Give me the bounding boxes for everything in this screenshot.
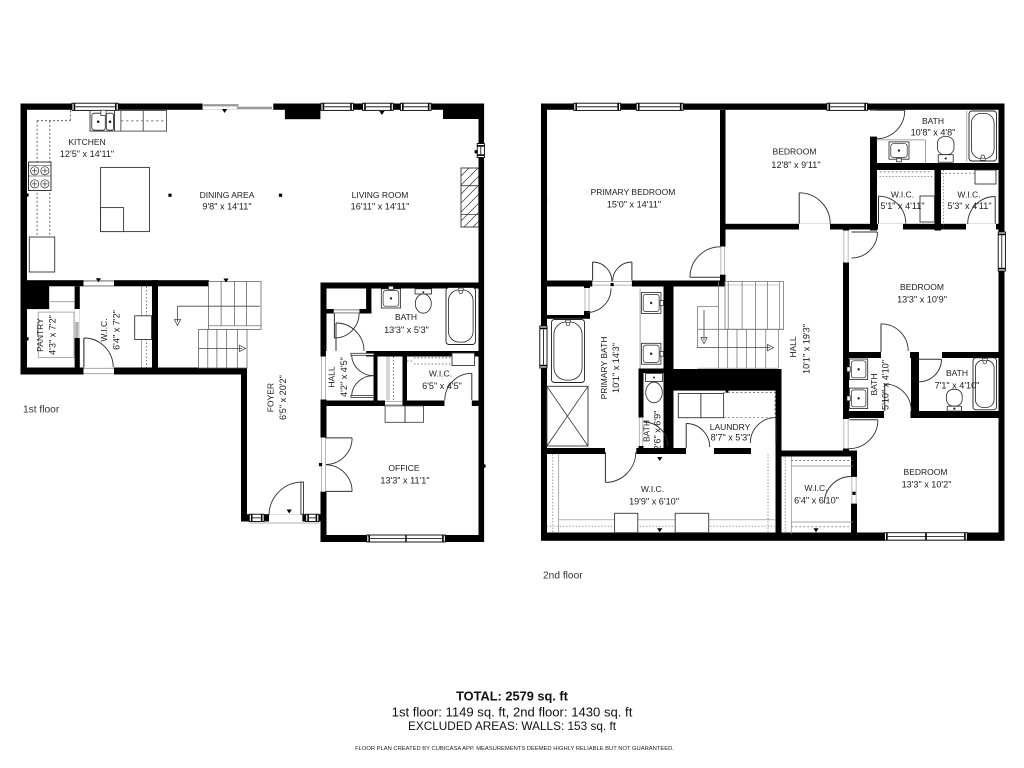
svg-text:BATH: BATH xyxy=(922,116,944,126)
svg-text:W.I.C.: W.I.C. xyxy=(891,190,914,200)
svg-text:1st floor: 1st floor xyxy=(23,405,60,416)
svg-text:16'11" x 14'11": 16'11" x 14'11" xyxy=(351,202,410,212)
svg-text:PANTRY: PANTRY xyxy=(35,318,45,352)
svg-text:FOYER: FOYER xyxy=(266,383,276,412)
svg-text:W.I.C.: W.I.C. xyxy=(957,190,980,200)
svg-text:4'2" x 4'5": 4'2" x 4'5" xyxy=(339,357,349,397)
svg-text:2nd floor: 2nd floor xyxy=(543,571,583,582)
svg-text:5'10" x 4'10": 5'10" x 4'10" xyxy=(881,360,891,410)
svg-text:7'1" x 4'10": 7'1" x 4'10" xyxy=(935,380,980,390)
svg-text:BEDROOM: BEDROOM xyxy=(773,147,817,157)
svg-text:9'8" x 14'11": 9'8" x 14'11" xyxy=(202,202,251,212)
svg-text:HALL: HALL xyxy=(788,336,798,358)
svg-text:4'3" x 7'2": 4'3" x 7'2" xyxy=(47,315,57,355)
svg-text:13'3" x 10'9": 13'3" x 10'9" xyxy=(897,294,947,304)
svg-text:W.I.C.: W.I.C. xyxy=(641,484,664,494)
svg-text:6'5" x 20'2": 6'5" x 20'2" xyxy=(278,375,288,420)
svg-text:1st floor: 1149 sq. ft, 2nd fl: 1st floor: 1149 sq. ft, 2nd floor: 1430 … xyxy=(392,705,633,720)
svg-text:BATH: BATH xyxy=(395,312,417,322)
svg-text:13'3" x 10'2": 13'3" x 10'2" xyxy=(902,480,952,490)
svg-text:13'3" x 5'3": 13'3" x 5'3" xyxy=(384,325,429,335)
svg-text:2'6" x 6'9": 2'6" x 6'9" xyxy=(653,411,663,451)
svg-text:TOTAL: 2579 sq. ft: TOTAL: 2579 sq. ft xyxy=(456,688,569,703)
svg-text:6'4" x 7'2": 6'4" x 7'2" xyxy=(112,310,122,350)
svg-text:BEDROOM: BEDROOM xyxy=(900,282,944,292)
svg-text:19'9" x 6'10": 19'9" x 6'10" xyxy=(629,497,679,507)
svg-text:PRIMARY BATH: PRIMARY BATH xyxy=(599,337,609,400)
svg-text:6'4" x 6'10": 6'4" x 6'10" xyxy=(794,495,839,505)
svg-text:KITCHEN: KITCHEN xyxy=(68,137,105,147)
svg-text:DINING AREA: DINING AREA xyxy=(200,190,255,200)
svg-text:12'8" x 9'11": 12'8" x 9'11" xyxy=(771,160,820,170)
svg-text:BATH: BATH xyxy=(946,368,968,378)
svg-text:LAUNDRY: LAUNDRY xyxy=(710,422,751,432)
svg-text:BATH: BATH xyxy=(642,420,652,442)
svg-text:10'1" x 19'3": 10'1" x 19'3" xyxy=(802,324,812,374)
svg-text:BATH: BATH xyxy=(869,373,879,395)
svg-text:10'1" x 14'3": 10'1" x 14'3" xyxy=(611,343,621,393)
svg-text:13'3" x 11'1": 13'3" x 11'1" xyxy=(380,476,429,486)
svg-text:BEDROOM: BEDROOM xyxy=(904,467,948,477)
svg-text:HALL: HALL xyxy=(327,366,337,388)
svg-text:EXCLUDED AREAS: WALLS: 153 sq.: EXCLUDED AREAS: WALLS: 153 sq. ft xyxy=(408,719,617,733)
svg-text:PRIMARY BEDROOM: PRIMARY BEDROOM xyxy=(591,187,676,197)
svg-text:LIVING ROOM: LIVING ROOM xyxy=(352,190,409,200)
svg-text:6'5" x 4'5": 6'5" x 4'5" xyxy=(422,381,462,391)
svg-text:W.I.C.: W.I.C. xyxy=(804,483,827,493)
svg-text:15'0" x 14'11": 15'0" x 14'11" xyxy=(607,199,661,209)
svg-text:W.I.C.: W.I.C. xyxy=(429,368,452,378)
svg-text:5'3" x 4'11": 5'3" x 4'11" xyxy=(947,201,991,211)
svg-text:OFFICE: OFFICE xyxy=(388,463,419,473)
svg-text:5'1" x 4'11": 5'1" x 4'11" xyxy=(880,201,924,211)
svg-text:8'7" x 5'3": 8'7" x 5'3" xyxy=(711,432,751,442)
svg-text:FLOOR PLAN CREATED BY CUBICASA: FLOOR PLAN CREATED BY CUBICASA APP. MEAS… xyxy=(355,746,674,752)
svg-text:12'5" x 14'11": 12'5" x 14'11" xyxy=(60,149,114,159)
svg-text:10'8" x 4'8": 10'8" x 4'8" xyxy=(911,127,956,137)
svg-text:W.I.C.: W.I.C. xyxy=(99,318,109,341)
